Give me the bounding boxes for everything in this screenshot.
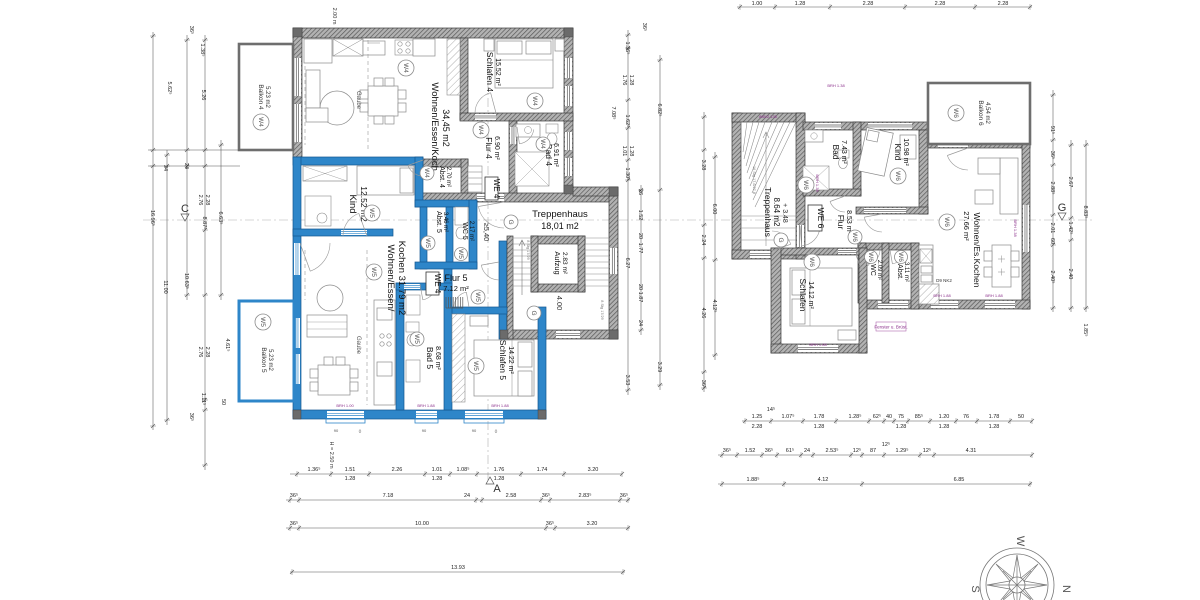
svg-text:Schlafen 5: Schlafen 5 bbox=[498, 340, 508, 380]
svg-text:85⁵: 85⁵ bbox=[915, 413, 923, 420]
svg-text:1.74: 1.74 bbox=[537, 467, 548, 473]
svg-text:3.20: 3.20 bbox=[587, 521, 598, 527]
svg-text:1.77: 1.77 bbox=[637, 243, 643, 254]
svg-text:Abst.: Abst. bbox=[896, 264, 903, 280]
svg-text:W5: W5 bbox=[474, 292, 481, 302]
svg-text:2.28: 2.28 bbox=[752, 424, 763, 430]
svg-text:4.00: 4.00 bbox=[555, 296, 564, 311]
svg-text:2.83⁵: 2.83⁵ bbox=[579, 492, 592, 499]
svg-text:BRH 1.38: BRH 1.38 bbox=[1013, 219, 1018, 237]
svg-text:24: 24 bbox=[464, 493, 470, 499]
svg-text:W4: W4 bbox=[423, 168, 430, 178]
svg-text:27.66 m²: 27.66 m² bbox=[962, 211, 971, 241]
svg-text:2.83 m²: 2.83 m² bbox=[561, 252, 568, 275]
svg-text:BRH 1.88: BRH 1.88 bbox=[933, 293, 951, 298]
svg-text:4.31: 4.31 bbox=[966, 448, 977, 454]
svg-text:3.28: 3.28 bbox=[700, 160, 706, 171]
svg-text:20: 20 bbox=[637, 233, 643, 239]
svg-text:1.38⁵: 1.38⁵ bbox=[199, 44, 206, 57]
svg-text:BRH 1.88: BRH 1.88 bbox=[417, 403, 435, 408]
svg-text:90: 90 bbox=[472, 428, 477, 433]
svg-text:7.12 m²: 7.12 m² bbox=[443, 284, 469, 293]
svg-text:Kind: Kind bbox=[347, 194, 358, 213]
svg-text:3.20: 3.20 bbox=[588, 467, 599, 473]
svg-text:36⁵: 36⁵ bbox=[188, 413, 195, 421]
svg-text:BRH 1.88: BRH 1.88 bbox=[985, 293, 1003, 298]
svg-text:1.36⁵: 1.36⁵ bbox=[308, 466, 321, 473]
svg-text:1.87: 1.87 bbox=[637, 292, 643, 303]
svg-text:1.29⁵: 1.29⁵ bbox=[896, 447, 909, 454]
svg-text:BRH 1.88: BRH 1.88 bbox=[809, 342, 827, 347]
svg-text:Kind: Kind bbox=[893, 143, 903, 160]
svg-text:1.78: 1.78 bbox=[989, 414, 1000, 420]
svg-text:14⁵: 14⁵ bbox=[767, 406, 775, 413]
svg-text:36⁵: 36⁵ bbox=[620, 492, 628, 499]
svg-text:W4: W4 bbox=[531, 96, 538, 106]
svg-text:W: W bbox=[1014, 536, 1026, 547]
svg-text:W5: W5 bbox=[457, 249, 464, 259]
svg-text:6.63⁵: 6.63⁵ bbox=[217, 212, 224, 225]
svg-text:BRH 1.88: BRH 1.88 bbox=[491, 403, 509, 408]
svg-text:2.40: 2.40 bbox=[1067, 269, 1073, 280]
svg-text:13.93: 13.93 bbox=[451, 565, 465, 571]
svg-text:3.53: 3.53 bbox=[624, 375, 630, 386]
svg-text:2.76: 2.76 bbox=[197, 195, 203, 206]
svg-text:14.12 m²: 14.12 m² bbox=[807, 281, 814, 309]
svg-text:Gaube: Gaube bbox=[355, 91, 361, 110]
svg-text:W5: W5 bbox=[472, 361, 479, 371]
svg-text:1.42⁵: 1.42⁵ bbox=[1067, 222, 1074, 235]
svg-text:11.00: 11.00 bbox=[162, 280, 168, 293]
svg-text:W5: W5 bbox=[370, 267, 377, 277]
svg-text:1.76: 1.76 bbox=[621, 75, 627, 86]
svg-text:2.17 m²: 2.17 m² bbox=[468, 221, 474, 241]
svg-text:1.88⁵: 1.88⁵ bbox=[747, 476, 760, 483]
svg-text:2.76: 2.76 bbox=[197, 347, 203, 358]
svg-text:Flur 5: Flur 5 bbox=[444, 273, 467, 283]
svg-text:36⁵: 36⁵ bbox=[765, 447, 773, 454]
svg-text:75: 75 bbox=[898, 414, 904, 420]
svg-text:Schlafen 4: Schlafen 4 bbox=[485, 52, 495, 92]
svg-text:1.25: 1.25 bbox=[752, 414, 763, 420]
svg-text:1.28: 1.28 bbox=[795, 1, 806, 7]
svg-text:12⁵: 12⁵ bbox=[923, 447, 931, 454]
svg-text:50: 50 bbox=[220, 399, 226, 405]
svg-text:1.28: 1.28 bbox=[628, 146, 634, 157]
svg-text:≥5,40: ≥5,40 bbox=[482, 223, 491, 242]
svg-text:6.90 m²: 6.90 m² bbox=[493, 136, 500, 160]
svg-text:S: S bbox=[969, 585, 981, 592]
svg-text:36⁵: 36⁵ bbox=[546, 520, 554, 527]
svg-text:36⁵: 36⁵ bbox=[1049, 151, 1056, 159]
svg-text:2.70 m²: 2.70 m² bbox=[445, 167, 451, 187]
svg-text:1.78: 1.78 bbox=[814, 414, 825, 420]
svg-text:2.00 m: 2.00 m bbox=[331, 8, 337, 25]
svg-text:2.58: 2.58 bbox=[506, 493, 517, 499]
svg-text:Bad 5: Bad 5 bbox=[425, 347, 435, 369]
svg-text:4.61⁵: 4.61⁵ bbox=[224, 339, 231, 352]
svg-text:36⁵: 36⁵ bbox=[542, 492, 550, 499]
svg-text:Flur 4: Flur 4 bbox=[484, 137, 494, 159]
svg-text:Wohnen/Essen/: Wohnen/Essen/ bbox=[385, 245, 396, 312]
svg-text:W6: W6 bbox=[894, 171, 901, 181]
svg-text:90: 90 bbox=[334, 428, 339, 433]
svg-text:W6: W6 bbox=[808, 257, 815, 267]
svg-text:36⁵: 36⁵ bbox=[700, 380, 707, 388]
svg-text:1.52: 1.52 bbox=[637, 210, 643, 221]
svg-text:2.28: 2.28 bbox=[204, 195, 210, 206]
svg-text:G: G bbox=[777, 237, 784, 242]
svg-text:Abst. 5: Abst. 5 bbox=[435, 211, 442, 233]
svg-text:36⁵: 36⁵ bbox=[290, 492, 298, 499]
svg-text:D9 NK2: D9 NK2 bbox=[936, 278, 952, 283]
svg-text:15.52 m²: 15.52 m² bbox=[494, 58, 501, 86]
svg-text:90: 90 bbox=[422, 428, 427, 433]
svg-text:Treppenhaus: Treppenhaus bbox=[532, 209, 588, 220]
svg-text:18,01 m2: 18,01 m2 bbox=[541, 221, 579, 231]
svg-text:Fenster u. Brüst.: Fenster u. Brüst. bbox=[874, 325, 907, 330]
svg-text:3.29: 3.29 bbox=[656, 362, 662, 373]
svg-text:W4: W4 bbox=[257, 117, 264, 127]
svg-text:1.28: 1.28 bbox=[989, 424, 1000, 430]
svg-text:2.09 m²: 2.09 m² bbox=[876, 260, 882, 280]
svg-text:2.01: 2.01 bbox=[1049, 223, 1055, 234]
svg-text:3.11 m²: 3.11 m² bbox=[903, 262, 909, 282]
svg-text:BRH 1.00: BRH 1.00 bbox=[336, 403, 354, 408]
svg-text:W6: W6 bbox=[851, 232, 858, 242]
svg-text:36⁵: 36⁵ bbox=[188, 26, 195, 34]
svg-text:34,45 m2: 34,45 m2 bbox=[441, 109, 451, 147]
svg-text:91⁵: 91⁵ bbox=[1049, 126, 1056, 134]
svg-text:Bad: Bad bbox=[831, 144, 841, 159]
svg-text:W5: W5 bbox=[424, 238, 431, 248]
svg-text:1.85⁵: 1.85⁵ bbox=[1082, 324, 1089, 337]
svg-text:36⁵: 36⁵ bbox=[641, 23, 648, 31]
svg-text:6.91 m²: 6.91 m² bbox=[552, 143, 559, 167]
svg-text:H = 2.50 m: H = 2.50 m bbox=[328, 441, 334, 468]
svg-text:10.00: 10.00 bbox=[415, 521, 429, 527]
svg-text:1.28: 1.28 bbox=[432, 476, 443, 482]
svg-text:2.53⁵: 2.53⁵ bbox=[826, 447, 839, 454]
svg-text:WE 4: WE 4 bbox=[433, 274, 442, 294]
svg-text:1.51: 1.51 bbox=[345, 467, 356, 473]
svg-text:40: 40 bbox=[886, 414, 892, 420]
svg-text:1.08⁵: 1.08⁵ bbox=[457, 466, 470, 473]
svg-text:6.82⁵: 6.82⁵ bbox=[656, 104, 663, 117]
svg-text:6.85: 6.85 bbox=[954, 477, 965, 483]
svg-text:14.22 m²: 14.22 m² bbox=[507, 346, 514, 374]
svg-text:3.46 m²: 3.46 m² bbox=[442, 212, 448, 232]
svg-text:Balkon 4: Balkon 4 bbox=[257, 84, 264, 110]
svg-text:Wohnen/Essen/Koch.: Wohnen/Essen/Koch. bbox=[429, 82, 440, 173]
svg-text:2.28: 2.28 bbox=[935, 1, 946, 7]
svg-text:24: 24 bbox=[804, 448, 810, 454]
svg-text:Wohnen/Es.Kochen: Wohnen/Es.Kochen bbox=[972, 213, 982, 288]
svg-text:Balkon 5: Balkon 5 bbox=[260, 347, 267, 373]
svg-text:1.28: 1.28 bbox=[939, 424, 950, 430]
svg-text:4.26: 4.26 bbox=[700, 308, 706, 319]
svg-text:26: 26 bbox=[637, 189, 643, 195]
svg-text:5.62⁵: 5.62⁵ bbox=[166, 82, 173, 95]
svg-text:2.28: 2.28 bbox=[998, 1, 1009, 7]
svg-text:5.26: 5.26 bbox=[200, 90, 206, 101]
svg-text:BRH 1.38: BRH 1.38 bbox=[815, 174, 820, 192]
svg-text:W6: W6 bbox=[952, 108, 959, 118]
svg-text:1.30⁵: 1.30⁵ bbox=[624, 168, 631, 181]
svg-text:W4: W4 bbox=[402, 63, 409, 73]
svg-text:20: 20 bbox=[637, 284, 643, 290]
svg-text:1.52: 1.52 bbox=[745, 448, 756, 454]
svg-text:1.11⁵: 1.11⁵ bbox=[200, 393, 207, 406]
svg-text:8.83⁵: 8.83⁵ bbox=[1082, 206, 1089, 219]
svg-text:G: G bbox=[1058, 202, 1067, 214]
svg-text:N: N bbox=[1060, 585, 1072, 593]
svg-text:1.28: 1.28 bbox=[814, 424, 825, 430]
svg-text:W5: W5 bbox=[259, 317, 266, 327]
svg-text:1.01: 1.01 bbox=[432, 467, 443, 473]
svg-text:W4: W4 bbox=[539, 139, 546, 149]
svg-text:8 Stg 17/29: 8 Stg 17/29 bbox=[526, 240, 530, 259]
svg-text:Balkon 6: Balkon 6 bbox=[977, 100, 984, 126]
svg-text:885/2.135: 885/2.135 bbox=[759, 114, 778, 119]
svg-text:2.28: 2.28 bbox=[863, 1, 874, 7]
svg-text:Gaube: Gaube bbox=[355, 336, 361, 355]
svg-text:61⁵: 61⁵ bbox=[786, 447, 794, 454]
svg-text:16.96⁵: 16.96⁵ bbox=[149, 210, 156, 226]
svg-text:1.20: 1.20 bbox=[939, 414, 950, 420]
svg-text:2.26: 2.26 bbox=[392, 467, 403, 473]
svg-text:7.08⁵: 7.08⁵ bbox=[610, 107, 617, 120]
svg-text:1.28⁵: 1.28⁵ bbox=[849, 413, 862, 420]
svg-text:1.36⁵: 1.36⁵ bbox=[624, 42, 631, 55]
svg-text:24: 24 bbox=[637, 320, 643, 326]
svg-text:5.23 m2: 5.23 m2 bbox=[267, 349, 273, 371]
svg-text:2.28: 2.28 bbox=[204, 347, 210, 358]
svg-text:WE 6: WE 6 bbox=[816, 208, 826, 229]
svg-text:A: A bbox=[493, 483, 501, 495]
svg-text:1.28: 1.28 bbox=[896, 424, 907, 430]
svg-text:W6: W6 bbox=[867, 252, 874, 262]
svg-text:12⁵: 12⁵ bbox=[882, 441, 890, 448]
svg-text:10.98 m²: 10.98 m² bbox=[902, 138, 909, 166]
svg-text:Treppenhaus: Treppenhaus bbox=[763, 187, 773, 237]
svg-text:2.67: 2.67 bbox=[1067, 177, 1073, 188]
svg-text:4,54 m2: 4,54 m2 bbox=[984, 102, 990, 124]
svg-text:WE 4: WE 4 bbox=[492, 179, 501, 199]
svg-text:1.76: 1.76 bbox=[494, 467, 505, 473]
svg-text:6.27: 6.27 bbox=[624, 258, 630, 269]
svg-text:Kochen 31.79 m2: Kochen 31.79 m2 bbox=[396, 241, 407, 315]
svg-text:W5: W5 bbox=[368, 208, 375, 218]
svg-text:Aufzug: Aufzug bbox=[553, 251, 562, 274]
svg-text:60: 60 bbox=[1049, 238, 1055, 244]
svg-text:5.23 m2: 5.23 m2 bbox=[264, 86, 270, 108]
svg-text:62⁵: 62⁵ bbox=[873, 413, 881, 420]
svg-text:1.01: 1.01 bbox=[621, 146, 627, 157]
svg-text:1.07⁵: 1.07⁵ bbox=[782, 413, 795, 420]
svg-text:50: 50 bbox=[1018, 414, 1024, 420]
svg-text:+ 3.48: + 3.48 bbox=[781, 203, 788, 223]
svg-text:4.12⁵: 4.12⁵ bbox=[711, 300, 718, 313]
svg-text:10.63⁵: 10.63⁵ bbox=[183, 273, 190, 289]
svg-text:1.28: 1.28 bbox=[494, 476, 505, 482]
svg-text:2.88⁵: 2.88⁵ bbox=[1049, 182, 1056, 195]
svg-text:G: G bbox=[530, 310, 537, 315]
svg-text:8.87⁵: 8.87⁵ bbox=[201, 217, 208, 230]
svg-text:WC: WC bbox=[869, 264, 876, 276]
svg-text:6.00: 6.00 bbox=[711, 204, 717, 215]
svg-text:1.28: 1.28 bbox=[345, 476, 356, 482]
svg-text:8.68 m²: 8.68 m² bbox=[434, 346, 441, 370]
svg-text:W6: W6 bbox=[897, 252, 904, 262]
svg-text:36⁵: 36⁵ bbox=[290, 520, 298, 527]
svg-text:1.62⁵: 1.62⁵ bbox=[624, 115, 631, 128]
svg-text:7.43 m²: 7.43 m² bbox=[840, 140, 847, 164]
svg-text:WC 5: WC 5 bbox=[461, 222, 468, 240]
svg-text:BRH 1.38: BRH 1.38 bbox=[827, 83, 845, 88]
svg-text:W4: W4 bbox=[477, 125, 484, 135]
svg-text:7.18: 7.18 bbox=[383, 493, 394, 499]
svg-text:87: 87 bbox=[870, 448, 876, 454]
svg-text:16 Stg 17,6/27,8: 16 Stg 17,6/27,8 bbox=[752, 166, 756, 194]
svg-text:1.28: 1.28 bbox=[628, 75, 634, 86]
svg-text:Flur: Flur bbox=[836, 215, 846, 230]
svg-text:W6: W6 bbox=[802, 180, 809, 190]
svg-text:Schlafen: Schlafen bbox=[798, 278, 808, 311]
svg-text:12⁵: 12⁵ bbox=[853, 447, 861, 454]
svg-text:G: G bbox=[507, 219, 514, 224]
svg-text:36⁵: 36⁵ bbox=[723, 447, 731, 454]
svg-text:4.12: 4.12 bbox=[818, 477, 829, 483]
svg-text:76: 76 bbox=[963, 414, 969, 420]
svg-text:2.24: 2.24 bbox=[700, 235, 706, 246]
svg-text:W5: W5 bbox=[413, 334, 420, 344]
svg-text:C: C bbox=[181, 203, 189, 215]
svg-text:8 Stg 17/29: 8 Stg 17/29 bbox=[600, 300, 604, 319]
svg-text:W6: W6 bbox=[943, 217, 950, 227]
svg-text:1.00: 1.00 bbox=[752, 1, 763, 7]
svg-text:8.64 m2: 8.64 m2 bbox=[772, 198, 781, 227]
svg-text:2.40⁵: 2.40⁵ bbox=[1049, 271, 1056, 284]
svg-text:Abst. 4: Abst. 4 bbox=[438, 166, 445, 188]
